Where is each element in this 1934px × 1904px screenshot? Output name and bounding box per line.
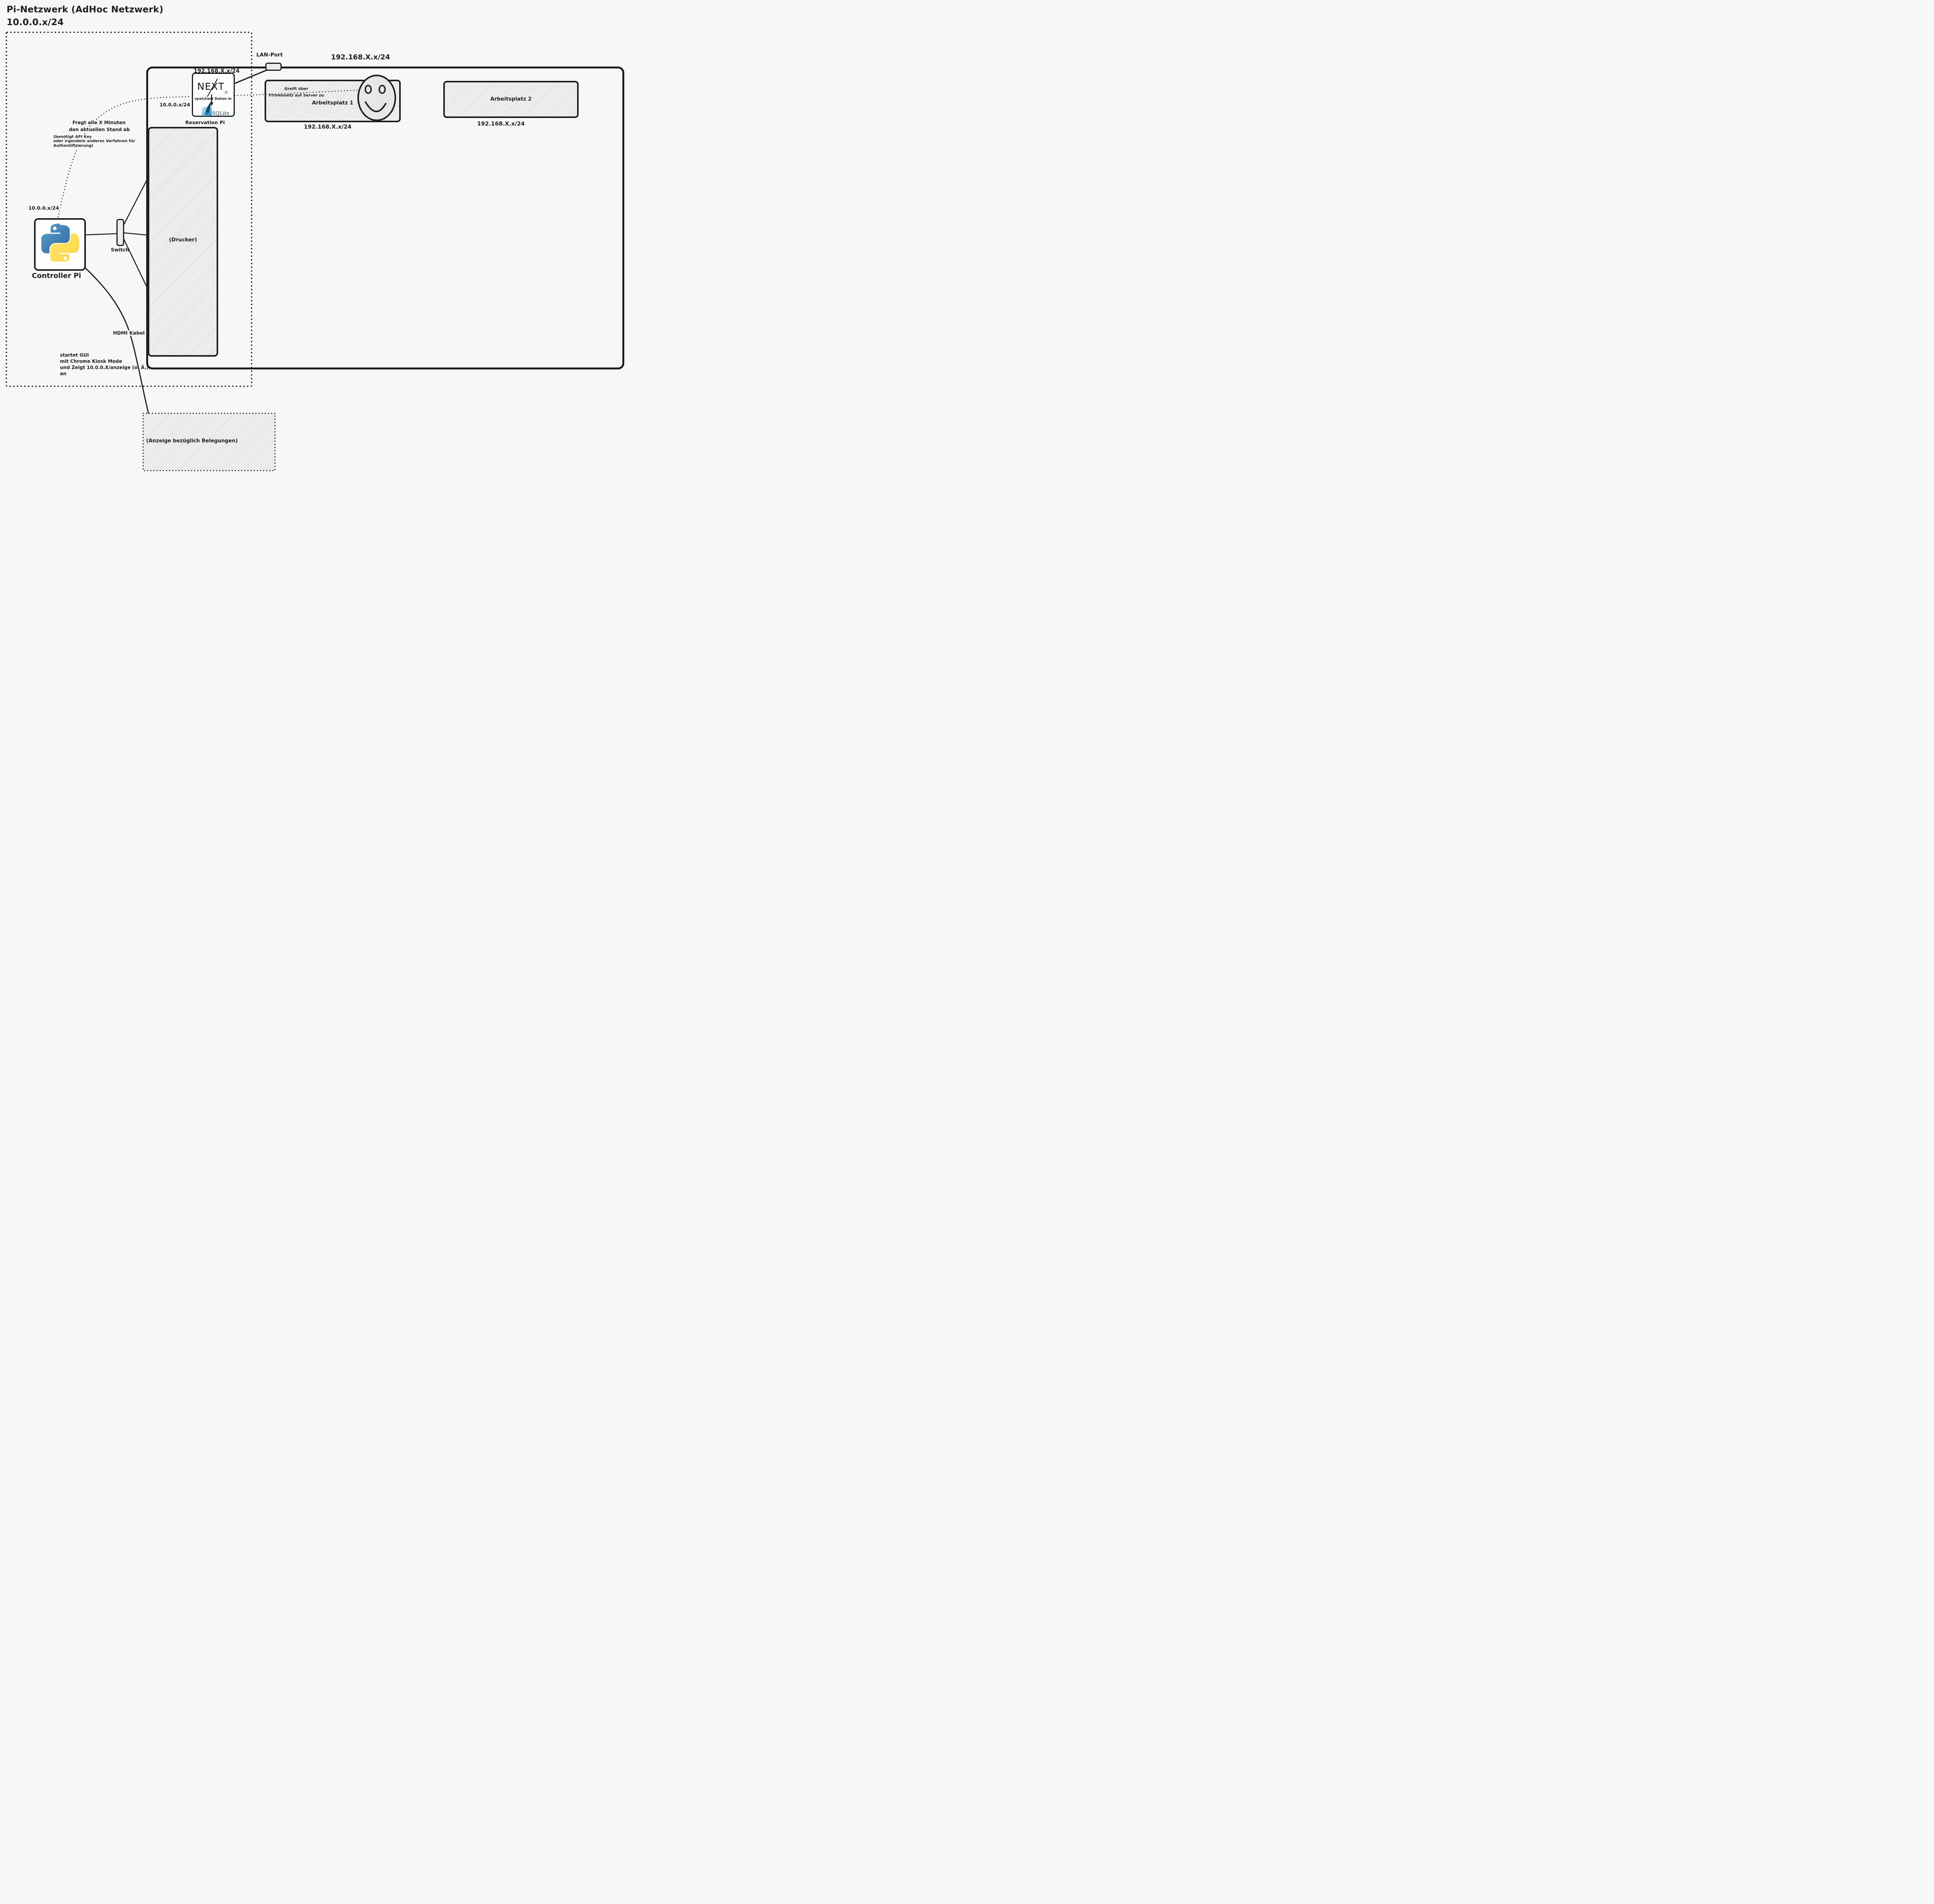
lan-port-icon	[265, 63, 282, 71]
workstation2-subnet-label: 192.168.X.x/24	[477, 121, 525, 128]
workstation1-label: Arbeitsplatz 1	[312, 100, 354, 106]
gui-note: startet GUI mit Chrome Kiosk Mode und Ze…	[60, 352, 149, 377]
gui-note-line3: und Zeigt 10.0.0.X/anzeige (o. Ä.)	[60, 364, 149, 371]
controller-pi-label: Controller Pi	[32, 272, 81, 280]
reservation-subnet-company-label: 192.168.X.x/24	[194, 68, 240, 74]
workstation2-label: Arbeitsplatz 2	[490, 96, 532, 103]
reservation-pi-box: NEXT .JS speichert Daten in SQLite	[192, 73, 235, 117]
workstation1-subnet-label: 192.168.X.x/24	[304, 124, 351, 131]
gui-note-line1: startet GUI	[60, 352, 149, 358]
stores-note: speichert Daten in	[195, 97, 232, 101]
company-subnet-label: 192.168.X.x/24	[331, 54, 390, 62]
cable-controller-to-switch	[86, 234, 117, 235]
auth-note-line1: (benötigt API Key	[52, 135, 93, 139]
lan-port-label: LAN-Port	[256, 52, 283, 58]
reservation-pi-content: NEXT .JS speichert Daten in SQLite	[192, 73, 235, 117]
diagram-title: Pi-Netzwerk (AdHoc Netzwerk)	[7, 5, 163, 15]
auth-note-line2: oder irgendein anderes Verfahren für	[52, 139, 136, 144]
poll-note-line1: Fragt alle X Minuten	[71, 120, 127, 126]
python-logo	[41, 224, 79, 262]
switch-box	[116, 219, 124, 246]
gui-note-line2: mit Chrome Kiosk Mode	[60, 358, 149, 364]
poll-note-line2: den aktuellen Stand ab	[68, 127, 131, 133]
display-label: (Anzeige bezüglich Belegungen)	[146, 439, 238, 444]
cable-switch-to-printer-upper	[124, 177, 149, 225]
diagram-canvas: NEXT .JS speichert Daten in SQLite	[0, 0, 630, 476]
auth-note-line3: Authentifizierung)	[52, 144, 94, 148]
nextjs-js-suffix: .JS	[224, 91, 228, 94]
controller-subnet-label: 10.0.0.x/24	[27, 205, 60, 211]
reservation-subnet-pi-label: 10.0.0.x/24	[158, 102, 191, 108]
gui-note-line4: an	[60, 371, 149, 377]
controller-pi-box	[34, 218, 86, 271]
printer-label: (Drucker)	[169, 237, 197, 243]
diagram-title-subnet: 10.0.0.x/24	[7, 17, 64, 27]
reservation-pi-label: Reservation Pi	[185, 120, 225, 125]
hdmi-cable-label: HDMI Kabel	[112, 330, 146, 336]
hdmi-cable-line	[86, 268, 149, 414]
switch-label: Switch	[111, 247, 129, 253]
workstation1-note-line1: Greift über	[284, 87, 308, 91]
sqlite-logo-text: SQLite	[212, 111, 230, 116]
cable-switch-to-printer-middle	[124, 233, 149, 235]
workstation1-note-line2: Firmennetz auf Server zu	[269, 93, 324, 98]
